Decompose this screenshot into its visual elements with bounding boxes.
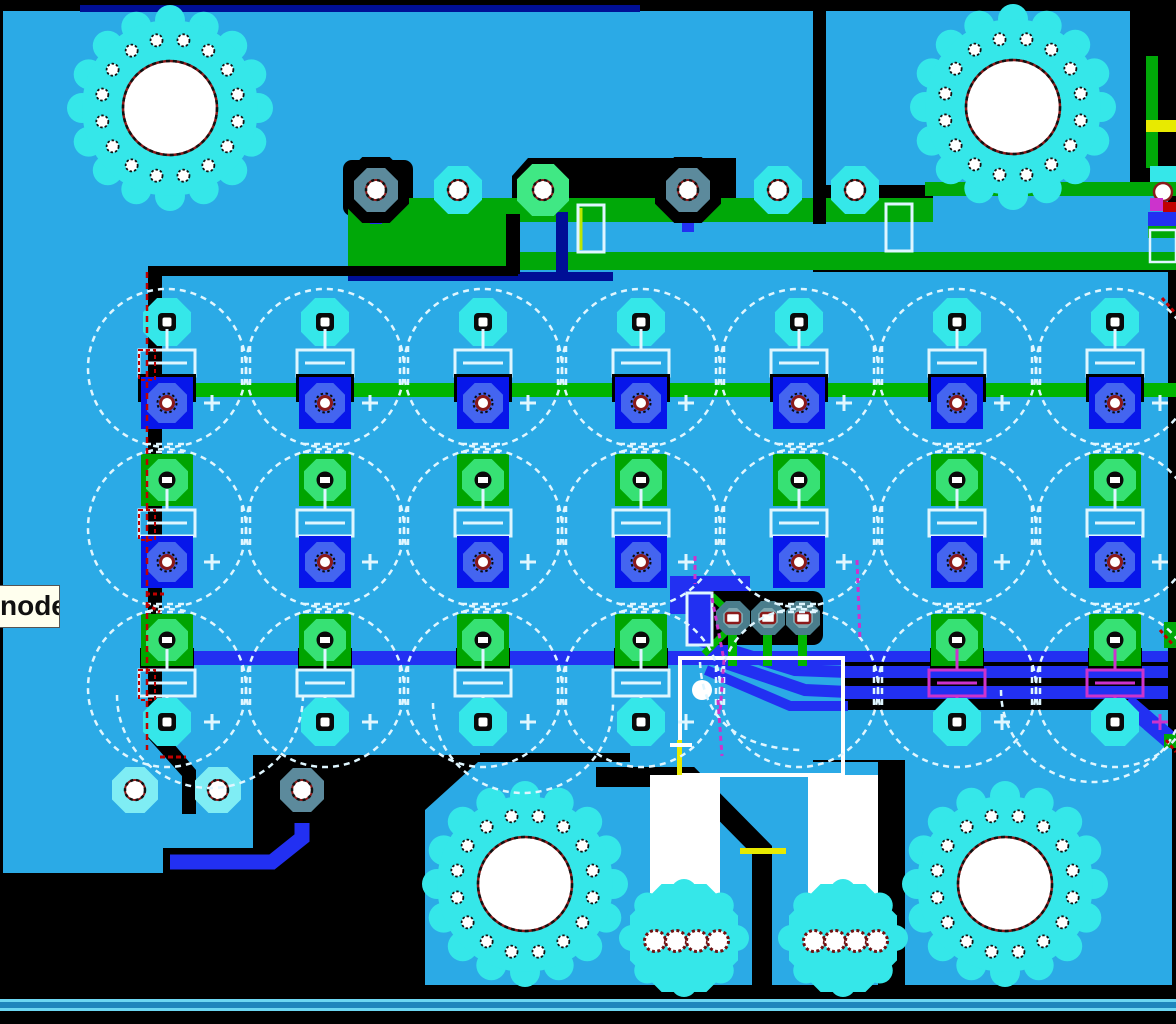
pcb-board-view[interactable] xyxy=(0,0,1176,1024)
via[interactable] xyxy=(434,166,482,214)
rect-pad xyxy=(687,593,712,645)
mounting-hole[interactable] xyxy=(902,781,1108,987)
via[interactable] xyxy=(343,157,409,223)
via[interactable] xyxy=(112,767,158,813)
via[interactable] xyxy=(517,164,569,216)
mounting-hole[interactable] xyxy=(67,5,273,211)
tooltip-label: node xyxy=(0,590,60,621)
bottom-copper-strip xyxy=(0,999,1176,1011)
via[interactable] xyxy=(655,157,721,223)
pin1-dot xyxy=(692,680,712,700)
via[interactable] xyxy=(751,601,785,635)
pcb-editor-canvas[interactable]: node xyxy=(0,0,1176,1024)
mounting-hole[interactable] xyxy=(422,781,628,987)
pour-divider xyxy=(813,0,826,224)
connector-pad[interactable] xyxy=(778,879,908,997)
yellow-silk-line xyxy=(740,848,786,854)
mounting-hole[interactable] xyxy=(910,4,1116,210)
via[interactable] xyxy=(195,767,241,813)
tooltip: node xyxy=(0,585,60,628)
via[interactable] xyxy=(786,601,820,635)
via[interactable] xyxy=(831,166,879,214)
connector-pad[interactable] xyxy=(619,879,749,997)
via[interactable] xyxy=(754,166,802,214)
